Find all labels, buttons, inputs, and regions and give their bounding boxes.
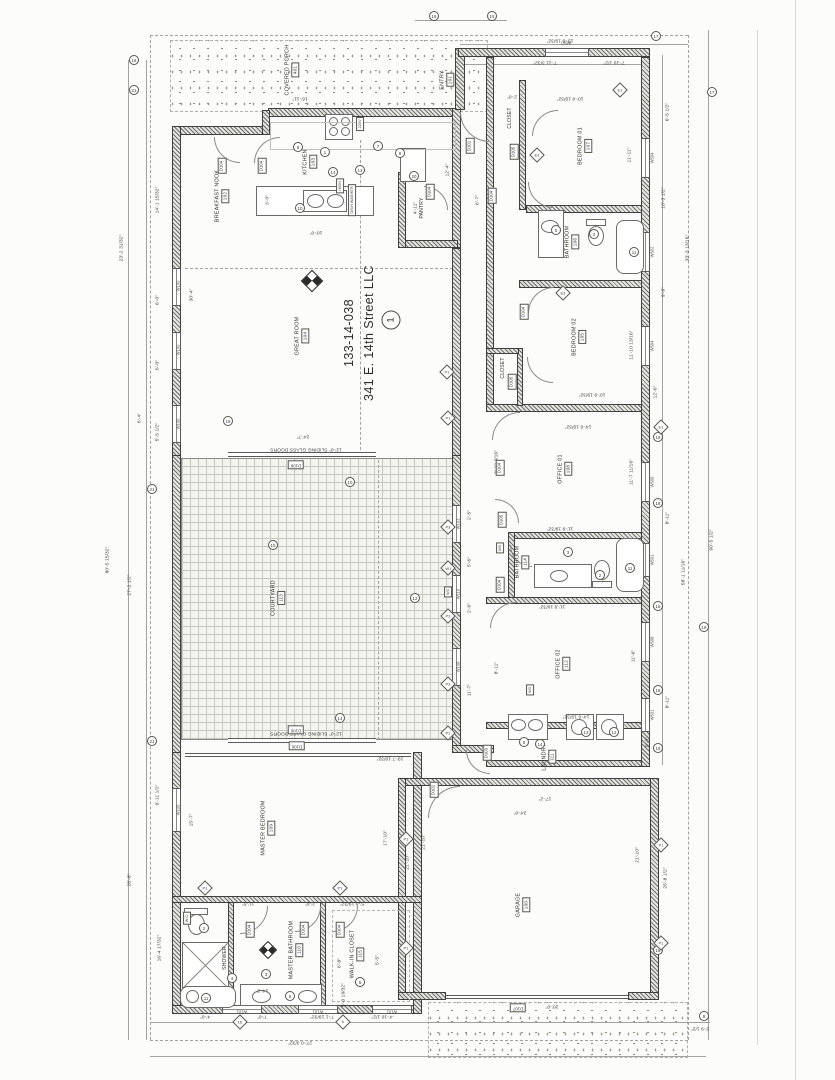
wall-segment [172, 126, 270, 135]
ref-marker-10: 10 [295, 203, 305, 213]
dimension-text-25-8-1-2: 25'-8 1/2" [664, 867, 669, 888]
keynote-label: P1 [404, 837, 409, 842]
dimension-text-14-6-19-32: 14'-6 19/32" [565, 424, 592, 429]
door-tag-d104: D104 [520, 304, 529, 320]
room-number-tag: 108 [564, 462, 572, 476]
dimension-text-24-7: 24'-7" [297, 434, 310, 439]
room-label-bedroom-01: BEDROOM 01107 [577, 127, 592, 165]
door-swing [490, 602, 516, 628]
ref-marker-13: 13 [581, 727, 591, 737]
ref-marker-13: 13 [355, 165, 365, 175]
garage-door [446, 995, 628, 999]
note-tag-w-c: W.C. [183, 911, 191, 924]
room-number-tag: 112 [562, 657, 570, 671]
ref-marker-18: 18 [653, 498, 663, 508]
ref-marker-9: 9 [395, 148, 405, 158]
dimension-text-5-6: 5'-6" [468, 557, 473, 567]
dimension-text-6-0: 6'-0" [156, 295, 161, 305]
wall-segment [486, 57, 494, 412]
drawing-line [128, 60, 129, 1040]
door-tag-d104: D104 [496, 460, 505, 476]
fixture-ellipse [528, 719, 543, 731]
window-tag-w507: W507 [561, 41, 572, 46]
keynote-label: P1 [203, 886, 208, 891]
dimension-text-11-7-11-16: 11'-7 11/16" [630, 459, 635, 485]
keynote-label: E3 [535, 153, 540, 158]
wall-segment [172, 896, 422, 903]
ref-marker-10: 10 [345, 477, 355, 487]
keynote-label: E1 [659, 425, 664, 430]
ref-marker-8: 8 [293, 142, 303, 152]
ref-marker-15: 15 [268, 540, 278, 550]
ref-marker-9: 9 [699, 1011, 709, 1021]
dimension-text-21-10: 21'-10" [406, 854, 411, 870]
dimension-text-8-11: 8'-11" [666, 512, 671, 524]
drawing-line [662, 55, 663, 765]
dimension-text-2-9-1-2: 2'-9 1/2" [691, 1026, 709, 1031]
room-name: WALK-IN CLOSET [349, 930, 355, 979]
room-label-bathroom: BATHROOM106 [564, 226, 579, 259]
door-tag-d105: D105 [508, 374, 517, 390]
ref-marker-2: 2 [199, 923, 209, 933]
keynote-label: E1 [618, 88, 623, 93]
window-tag-w506: W506 [650, 477, 655, 488]
dimension-text-11-9-19-32: 11'-9 19/32" [539, 604, 565, 609]
room-number-tag: 106 [571, 235, 579, 249]
room-number-tag: 102 [221, 189, 229, 203]
ref-marker-20: 20 [409, 171, 419, 181]
dimension-text-4-0: 4'-0" [200, 1014, 210, 1019]
door-tag-d102: D102 [430, 782, 439, 798]
drawing-line [795, 0, 796, 1080]
plan-title-block: 133-14-038 341 E. 14th Street LLC [339, 265, 379, 401]
owner-address: 341 E. 14th Street LLC [359, 265, 379, 401]
wall-segment [519, 80, 526, 210]
dimension-text-6-7: 6'-7" [476, 195, 481, 205]
keynote-label: P1 [338, 886, 343, 891]
room-number-tag: 109 [267, 821, 275, 835]
room-number-tag: 103 [309, 155, 317, 169]
keynote-label: P1 [659, 843, 664, 848]
dimension-text-7-10-1-2: 7'-10 1/2" [603, 60, 624, 65]
room-name: BEDROOM 01 [577, 127, 583, 165]
wall-segment [455, 48, 465, 110]
note-tag-dish-washer: DISH WASHER [348, 184, 356, 216]
sliding-glass-door [228, 452, 376, 457]
dimension-text-3-0: 3'-0" [266, 195, 271, 205]
keynote-label: W1 [445, 566, 451, 571]
area-label-closet: CLOSET [500, 357, 506, 378]
dimension-text-27-2-1-2: 27'-2 1/2" [128, 574, 133, 595]
dimension-text-6-5-1-2: 6'-5 1/2" [666, 103, 671, 121]
dimension-text-21-10: 21'-10" [636, 847, 641, 863]
door-swing [492, 412, 520, 440]
keynote-label: P3 [446, 525, 451, 530]
keynote-label: P3 [446, 682, 451, 687]
window-w507 [545, 48, 589, 57]
floor-plan-sheet: COVERED PORCH401ENTRY101BREAKFAST NOOK10… [0, 0, 835, 1080]
door-tag-d107: D107 [510, 1004, 526, 1013]
ref-marker-16: 16 [429, 11, 439, 21]
ref-marker-7: 7 [373, 141, 383, 151]
drawing-line [150, 35, 688, 36]
dimension-text-7-11-3-32: 7'-11 3/32" [533, 60, 557, 65]
dimension-text-30-4: 30'-4" [190, 289, 195, 302]
dimension-text-21-10: 21'-10" [422, 834, 427, 850]
dimension-text-6-0: 6'-0" [156, 360, 161, 370]
window-tag-w502: W502 [650, 247, 655, 258]
drawing-line [146, 60, 147, 1040]
window-tag-w504: W504 [650, 153, 655, 164]
room-number-tag: 115 [356, 947, 364, 961]
note-tag-220v: 220V [356, 117, 364, 131]
fixture-ellipse [307, 194, 324, 208]
room-label-great-room: GREAT ROOM104 [294, 317, 309, 356]
concrete-apron [428, 1002, 688, 1058]
ref-marker-12: 12 [609, 727, 619, 737]
ref-marker-18: 18 [653, 743, 663, 753]
keynote-marker-6: 6 [335, 1014, 351, 1030]
window-tag-w108: W108 [456, 662, 461, 673]
room-name: OFFICE 01 [557, 454, 563, 484]
room-number-tag: 114 [521, 555, 529, 569]
keynote-marker-e1: E1 [612, 82, 628, 98]
keynote-label: P1 [445, 370, 450, 375]
ref-marker-18: 18 [653, 601, 663, 611]
dimension-text-33-3-13-16: 33'-3 13/16" [686, 235, 691, 262]
ref-marker-14: 14 [328, 167, 338, 177]
dimension-text-12-4: 12'-4" [446, 164, 451, 177]
area-label-pantry: PANTRY [419, 197, 425, 218]
dimension-text-8-11: 8'-11" [666, 696, 671, 708]
dimension-text-11-10-13-16: 11'-10 13/16" [630, 330, 635, 359]
dimension-text-20-0: 20'-0" [546, 1004, 559, 1009]
dimension-text-17-2: 17'-2" [539, 796, 552, 801]
room-name: COURTYARD [270, 580, 276, 616]
drawing-line [757, 30, 758, 1045]
room-name: BATHROOM [564, 226, 570, 259]
room-name: KITCHEN [302, 149, 308, 174]
sheet-number-badge: 1 [382, 311, 401, 330]
ref-marker-11: 11 [629, 247, 639, 257]
dimension-text-27-0-3-32: 27'-0 3/32" [288, 1040, 312, 1045]
room-label-breakfast-nook: BREAKFAST NOOK102 [214, 170, 229, 223]
ref-marker-5: 5 [355, 977, 365, 987]
door-swing [532, 110, 558, 136]
door-tag-d104: D104 [218, 158, 227, 174]
ref-marker-21: 21 [147, 484, 157, 494]
ref-marker-2: 2 [589, 229, 599, 239]
wall-segment [519, 280, 642, 288]
dimension-text-24-0: 24'-0" [514, 810, 527, 815]
door-tag-d106: D106 [288, 726, 304, 735]
wall-segment [413, 752, 422, 1014]
ref-marker-21: 21 [147, 736, 157, 746]
door-tag-d105: D105 [510, 144, 519, 160]
dimension-text-14-6-19-32: 14'-6 19/32" [563, 714, 590, 719]
ref-marker-18: 18 [699, 622, 709, 632]
dimension-text-5-8-19-32: 5'-8 19/32" [340, 901, 364, 906]
door-swing [528, 287, 554, 313]
drawing-line [688, 35, 689, 1040]
dimension-text-7-0: 7'-0" [257, 1014, 267, 1019]
room-number-tag: 104 [301, 329, 309, 343]
dimension-text-15-7: 15'-7" [190, 814, 195, 827]
wall-segment [268, 108, 460, 117]
room-name: MASTER BATHROOM [288, 921, 294, 979]
door-tag-d101: D101 [466, 138, 475, 154]
dimension-text-6-4: 6'-4" [138, 413, 143, 423]
dimension-text-10-9-19-32: 10'-9 19/32" [557, 96, 584, 101]
ref-marker-17: 17 [651, 31, 661, 41]
dimension-text-2-5: 2'-5" [468, 510, 473, 520]
drawing-line [378, 460, 379, 740]
fixture-ellipse [511, 719, 526, 731]
room-number-tag: 105 [578, 330, 586, 344]
door-tag-d104: D104 [246, 922, 255, 938]
ref-marker-14: 14 [335, 713, 345, 723]
dimension-text-10-9-19-32: 10'-9 19/32" [579, 392, 606, 397]
room-name: BEDROOM 02 [571, 318, 577, 356]
keynote-marker-p1: P1 [332, 880, 348, 896]
door-swing [460, 112, 490, 142]
ref-marker-14: 14 [535, 739, 545, 749]
room-name: BATHROOM [514, 546, 520, 579]
fixture-ellipse [298, 990, 317, 1003]
dimension-text-8-11: 8'-11" [495, 662, 500, 674]
keynote-marker-16: 16 [232, 1014, 248, 1030]
ref-marker-18: 18 [223, 416, 233, 426]
room-name: COVERED PORCH [284, 45, 290, 96]
door-tag-d106: D106 [288, 461, 304, 470]
room-name: BREAKFAST NOOK [214, 170, 220, 223]
dimension-text-9-11-1-2: 9'-11 1/2" [156, 785, 161, 806]
window-tag-w103: W103 [456, 519, 461, 530]
room-number-tag: 113 [277, 591, 285, 605]
window-tag-w110: W110 [456, 589, 461, 599]
parcel-number: 133-14-038 [339, 265, 359, 401]
dimension-text-14-2: 14'-2" [256, 988, 269, 993]
drawing-line [460, 44, 688, 45]
keynote-label: 16 [238, 1019, 242, 1024]
drawing-line [185, 268, 453, 269]
room-label-walk-in-closet: WALK-IN CLOSET115 [349, 930, 364, 979]
ref-marker-5: 5 [551, 225, 561, 235]
wall-segment [486, 348, 519, 354]
room-name: GREAT ROOM [294, 317, 300, 356]
door-tag-d104: D104 [496, 577, 505, 593]
ref-marker-3: 3 [261, 969, 271, 979]
fixture-ellipse [186, 990, 199, 1003]
dimension-text-12-0-sliding-glass-doors: 12'-0" SLIDING GLASS DOORS [270, 447, 342, 452]
ref-marker-8: 8 [519, 737, 529, 747]
room-label-covered-porch: COVERED PORCH401 [284, 45, 299, 96]
dimension-text-2-6: 2'-6" [305, 901, 315, 906]
area-label-shower: SHOWER [222, 946, 228, 970]
fixture [586, 219, 606, 226]
dimension-text-5-0: 5'-0" [646, 737, 651, 747]
room-number-tag: 111 [548, 750, 556, 764]
dimension-text-23-2-31-32: 23'-2 31/32" [120, 235, 125, 262]
ref-marker-17: 17 [707, 87, 717, 97]
dimension-text-16-4-17-32: 16'-4 17/32" [158, 935, 163, 962]
fixture-ellipse [327, 194, 344, 208]
tile-detail [259, 941, 277, 959]
room-label-bathroom: BATHROOM114 [514, 546, 529, 579]
fixture [592, 581, 612, 588]
window-tag-w100: W100 [176, 345, 181, 356]
dimension-text-90-5-1-2: 90'-5 1/2" [710, 529, 715, 550]
room-name: ENTRY [439, 70, 445, 89]
room-label-office-01: OFFICE 01108 [557, 454, 572, 484]
wall-segment [172, 455, 181, 755]
wall-segment [486, 760, 642, 767]
dimension-text-2-0: 2'-0" [507, 94, 517, 99]
ref-marker-15: 15 [487, 11, 497, 21]
door-swing [527, 357, 553, 383]
room-label-entry: ENTRY101 [439, 70, 454, 89]
keynote-label: P3 [446, 614, 451, 619]
door-tag-d103: D103 [483, 745, 492, 761]
dimension-text-5-5: 5'-5" [376, 955, 381, 965]
note-tag-w3: W3 [496, 543, 504, 554]
room-number-tag: 107 [584, 139, 592, 153]
dimension-text-2-6: 2'-6" [468, 603, 473, 613]
room-name: MASTER BEDROOM [260, 800, 266, 855]
keynote-label: P1 [446, 416, 451, 421]
dimension-text-58-1-11-16: 58'-1 11/16" [682, 559, 687, 585]
keynote-marker-p1: P1 [197, 880, 213, 896]
door-tag-d105: D105 [498, 512, 507, 528]
room-label-bedroom-02: BEDROOM 02105 [571, 318, 586, 356]
drawing-line [150, 35, 151, 1040]
window-tag-w100: W100 [176, 281, 181, 292]
window-tag-w501: W501 [650, 710, 655, 721]
dimension-text-9-9: 9'-9" [662, 287, 667, 297]
window-tag-w101: W101 [237, 1010, 248, 1015]
fixture-ellipse [550, 570, 568, 582]
dimension-text-14-1-15-32: 14'-1 15/32" [156, 187, 161, 214]
dimension-text-12-0-sliding-glass-doors: 12'-0" SLIDING GLASS DOORS [270, 731, 342, 736]
dimension-text-12-6: 12'-6" [654, 386, 659, 399]
dimension-text-26-8: 26'-8" [128, 874, 133, 887]
keynote-label: P1 [659, 941, 664, 946]
drawing-line [150, 1056, 706, 1057]
room-number-tag: 110 [295, 943, 303, 957]
keynote-marker-e3: E3 [529, 147, 545, 163]
wall-segment [650, 778, 659, 1000]
door-tag-d104: D104 [488, 188, 497, 204]
dimension-text-11-5: 11'-5" [242, 901, 254, 906]
keynote-label: P1 [446, 731, 451, 736]
room-label-kitchen: KITCHEN103 [302, 149, 317, 174]
wall-segment [398, 172, 406, 248]
window-tag-w501: W501 [650, 555, 655, 566]
note-tag-w3: W3 [526, 685, 534, 696]
door-tag-d104: D104 [300, 922, 309, 938]
ref-marker-18: 18 [129, 55, 139, 65]
wall-segment [517, 348, 523, 406]
dimension-text-11-7: 11'-7" [468, 684, 473, 696]
keynote-label: P1 [404, 946, 409, 951]
door-tag-d104: D104 [336, 922, 345, 938]
wall-segment [628, 992, 659, 1000]
ref-marker-21: 21 [129, 85, 139, 95]
window-tag-w100: W100 [176, 419, 181, 430]
ref-marker-11: 11 [201, 993, 211, 1003]
ref-marker-2: 2 [595, 570, 605, 580]
note-tag-w3: W3 [444, 587, 452, 598]
wall-segment [452, 248, 461, 458]
ref-marker-6: 6 [285, 991, 295, 1001]
wall-segment [486, 404, 642, 412]
room-label-garage: GARAGE100 [515, 893, 530, 918]
door-tag-d104: D104 [426, 184, 435, 200]
room-number-tag: 100 [522, 898, 530, 912]
ref-marker-11: 11 [625, 563, 635, 573]
dimension-text-10-0: 10'-0" [310, 230, 323, 235]
wall-segment [262, 110, 270, 135]
dimension-text-17-10: 17'-10" [384, 830, 389, 846]
dimension-text-19-7-19-32: 19'-7 19/32" [377, 756, 404, 761]
ref-marker-3: 3 [563, 547, 573, 557]
dimension-text-5-5-1-2: 5'-5 1/2" [156, 423, 161, 441]
window-tag-w101: W101 [313, 1010, 324, 1015]
ref-marker-4: 4 [227, 973, 237, 983]
room-number-tag: 101 [446, 73, 454, 87]
ref-marker-1: 1 [320, 147, 330, 157]
room-label-master-bedroom: MASTER BEDROOM109 [260, 800, 275, 855]
keynote-label: 6 [342, 1019, 344, 1024]
area-label-closet: CLOSET [507, 107, 513, 128]
door-tag-d104: D104 [258, 158, 267, 174]
drawing-line [150, 1040, 688, 1041]
room-number-tag: 401 [291, 63, 299, 77]
fixture [538, 210, 564, 258]
dimension-text-11-11: 11'-11" [628, 148, 633, 163]
ref-marker-18: 18 [653, 685, 663, 695]
room-name: GARAGE [515, 893, 521, 918]
dimension-text-11-9-19-32: 11'-9 19/32" [547, 526, 573, 531]
north-arrow [301, 270, 324, 293]
door-tag-d106: D106 [289, 742, 305, 751]
window-tag-w504: W504 [650, 341, 655, 352]
room-label-office-02: OFFICE 02112 [555, 649, 570, 679]
keynote-label: E3 [561, 291, 566, 296]
room-label-courtyard: COURTYARD113 [270, 580, 285, 616]
window-tag-w101: W101 [387, 1010, 398, 1015]
ref-marker-12: 12 [410, 593, 420, 603]
dimension-text-4-11: 4'-11" [414, 202, 419, 214]
wall-segment [398, 240, 458, 248]
window-tag-w508: W508 [650, 637, 655, 648]
dimension-text-5-0-19-32: 5'-0 19/32" [342, 983, 347, 1007]
dimension-text-16-11: 16'-11" [292, 96, 307, 101]
note-tag-high: HIGH [336, 179, 344, 194]
sheet-number: 1 [386, 317, 397, 322]
room-name: OFFICE 02 [555, 649, 561, 679]
dimension-text-6-8: 6'-8" [338, 958, 343, 968]
dimension-text-11-6: 11'-6" [632, 650, 637, 662]
window-tag-w105: W105 [176, 805, 181, 816]
dimension-text-10-3-1-2: 10'-3 1/2" [662, 187, 667, 208]
dimension-text-80-5-15-32: 80'-5 15/32" [106, 547, 111, 574]
